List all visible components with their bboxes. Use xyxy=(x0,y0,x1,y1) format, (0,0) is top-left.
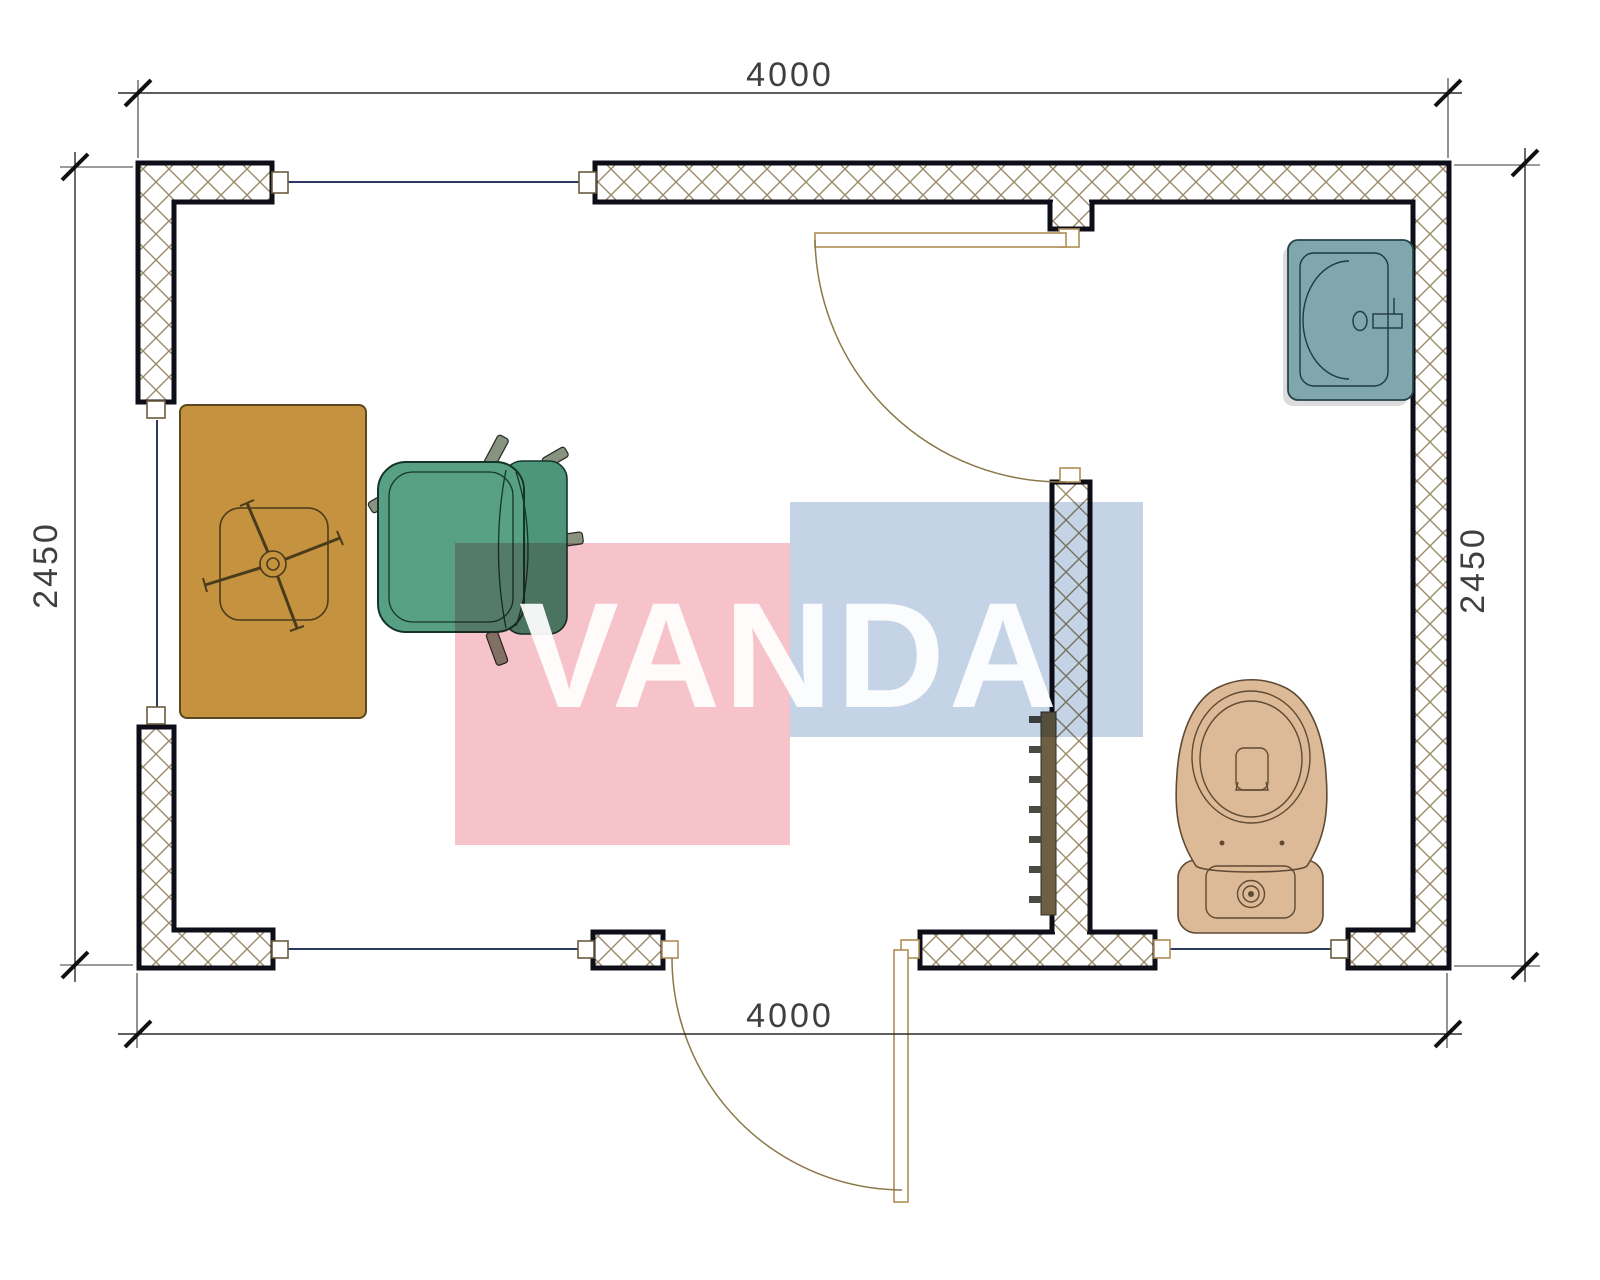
toilet-icon xyxy=(1176,680,1327,933)
door-frame-icon xyxy=(1154,940,1170,958)
door-swing-icon xyxy=(815,240,1066,482)
window-sill-icon xyxy=(578,941,594,958)
wall-bottom-pier xyxy=(593,932,663,968)
window-sill-icon xyxy=(147,401,165,418)
door-swing-icon xyxy=(672,958,902,1190)
entrance-door xyxy=(662,940,1170,1202)
wall-top-left-corner xyxy=(138,163,272,402)
door-frame-icon xyxy=(1060,468,1080,482)
wall-door-jamb-notch xyxy=(1050,202,1092,229)
watermark: VANDA xyxy=(455,502,1143,845)
window-sill-icon xyxy=(272,172,288,193)
wall-bathroom-bottom xyxy=(920,932,1155,968)
door-leaf-icon xyxy=(815,233,1066,247)
floor-plan-drawing: 4000 4000 2450 2450 VANDA xyxy=(0,0,1600,1280)
sink-icon xyxy=(1283,240,1413,406)
window-sill-icon xyxy=(147,707,165,724)
watermark-text: VANDA xyxy=(519,571,1061,739)
radiator-icon xyxy=(1029,712,1056,915)
door-leaf-icon xyxy=(894,950,908,1202)
bathroom-door xyxy=(815,229,1080,482)
dim-label-top: 4000 xyxy=(746,56,834,94)
wall-bottom-left-corner xyxy=(139,727,273,968)
dim-label-right: 2450 xyxy=(1454,526,1492,614)
floor-plan-canvas: 4000 4000 2450 2450 VANDA xyxy=(0,0,1600,1280)
dim-label-bottom: 4000 xyxy=(746,997,834,1035)
dim-label-left: 2450 xyxy=(27,521,65,609)
window-sill-icon xyxy=(579,172,596,193)
desk-icon xyxy=(180,405,366,718)
window-sill-icon xyxy=(272,941,288,958)
door-frame-icon xyxy=(662,941,678,958)
window-sill-icon xyxy=(1331,940,1348,958)
